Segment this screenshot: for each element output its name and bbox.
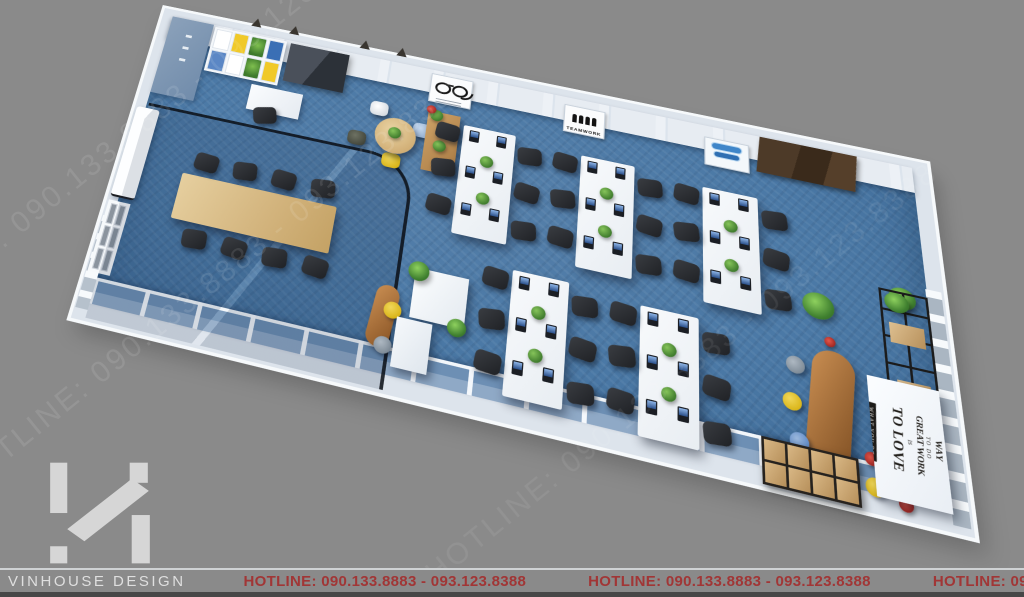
office-chair	[673, 182, 700, 207]
workstation-desk-4	[502, 270, 569, 410]
workstation-desk-5	[638, 305, 700, 450]
laptop	[739, 236, 750, 251]
laptop	[612, 241, 623, 256]
reception-sign-icon	[182, 46, 189, 50]
laptop	[545, 324, 557, 340]
interior: TEAMWORK	[87, 16, 953, 512]
vh-monogram-icon	[28, 452, 174, 566]
office-chair	[550, 189, 576, 210]
laptop	[709, 192, 720, 206]
laptop	[511, 360, 523, 377]
laptop	[515, 317, 527, 333]
desk-plant	[475, 191, 490, 206]
laptop	[469, 130, 480, 143]
reception-chair	[253, 107, 277, 124]
office-chair	[478, 307, 505, 330]
laptop	[488, 208, 499, 222]
laptop	[460, 202, 471, 216]
quote-text: THE ONLY WAY TO DO GREAT WORK IS TO LOVE…	[867, 395, 954, 492]
desk-plant	[662, 341, 677, 358]
laptop	[647, 354, 658, 370]
laptop	[678, 361, 689, 378]
hotline-text: HOTLINE: 090.133.8883 - 093.123.8388	[933, 573, 1024, 590]
wall-lamp-icon	[251, 18, 263, 28]
footer-bar: VINHOUSE DESIGN HOTLINE: 090.133.8883 - …	[0, 570, 1024, 592]
laptop	[492, 171, 503, 185]
gray-stool	[786, 354, 806, 376]
display-shelf	[204, 27, 287, 86]
pantry-cabinet	[390, 316, 433, 375]
laptop	[614, 203, 625, 217]
eames-chair-white	[369, 100, 389, 117]
office-chair	[764, 288, 793, 312]
laptop	[678, 406, 690, 423]
wall-lamp-icon	[289, 25, 301, 35]
desk-plant	[599, 186, 613, 201]
red-flower-pot	[824, 336, 836, 349]
conference-chair	[180, 228, 208, 251]
office-chair	[546, 224, 574, 250]
desk-plant	[527, 347, 543, 364]
desk-plant	[531, 305, 546, 322]
desk-plant	[479, 155, 493, 169]
office-chair	[701, 373, 731, 403]
poster-fine-print	[436, 98, 461, 104]
office-chair	[608, 344, 637, 368]
laptop	[548, 282, 560, 297]
office-chair	[609, 300, 638, 328]
laptop	[583, 235, 594, 250]
conference-chair	[232, 161, 258, 182]
office-chair	[511, 220, 536, 242]
laptop	[710, 269, 721, 284]
yellow-stool	[782, 390, 802, 413]
office-chair	[566, 381, 594, 407]
eames-chair-olive	[346, 129, 367, 147]
footer-dark-strip	[0, 592, 1024, 597]
hotline-text: HOTLINE: 090.133.8883 - 093.123.8388	[244, 573, 527, 590]
hotline-text: HOTLINE: 090.133.8883 - 093.123.8388	[588, 573, 871, 590]
conference-chair	[310, 178, 336, 199]
laptop	[738, 198, 749, 212]
workstation-desk-3	[702, 187, 761, 315]
terrace-bush	[802, 289, 836, 322]
wall-lamp-icon	[360, 39, 372, 49]
laptop	[585, 197, 596, 211]
desk-plant	[661, 385, 676, 403]
conference-chair	[261, 246, 289, 269]
office-chair	[517, 147, 542, 168]
laptop	[615, 166, 625, 180]
desk-plant	[724, 219, 738, 234]
workstation-desk-2	[575, 155, 635, 279]
laptop	[465, 165, 476, 179]
office-chair	[635, 213, 663, 239]
laptop	[519, 276, 531, 291]
wood-box	[889, 322, 926, 350]
reception-sign-icon	[179, 58, 186, 62]
desk-plant	[724, 258, 739, 274]
laptop	[496, 136, 507, 149]
laptop	[740, 276, 751, 291]
laptop	[678, 318, 689, 334]
office-chair	[637, 178, 663, 199]
laptop	[542, 367, 554, 384]
office-chair	[551, 151, 578, 175]
brand-name: VINHOUSE DESIGN	[8, 573, 186, 590]
office-chair	[571, 295, 598, 319]
dark-wood-wall-panel	[756, 137, 856, 192]
office-chair	[481, 264, 510, 291]
desk-plant	[598, 224, 612, 239]
vinhouse-logo	[28, 452, 174, 566]
office-chair	[701, 331, 730, 356]
office-chair	[424, 192, 453, 217]
wall-lamp-icon	[396, 47, 408, 57]
office-chair	[673, 221, 701, 243]
reception-feature-wall	[150, 16, 214, 101]
laptop	[646, 399, 658, 416]
office-chair	[762, 246, 790, 273]
laptop	[647, 311, 658, 327]
render-screenshot: { "colors": { "background": "#8a8a8a", "…	[0, 0, 1024, 597]
laptop	[710, 230, 721, 245]
office-chair	[760, 210, 788, 232]
laptop	[587, 161, 598, 175]
office-chair	[567, 335, 598, 364]
office-chair	[672, 258, 700, 285]
glasses-lens-icon	[435, 81, 452, 96]
office-chair	[512, 181, 540, 206]
office-chair	[635, 254, 662, 277]
workstation-desk-1	[451, 125, 516, 245]
office-chair	[431, 157, 455, 177]
office-building: TEAMWORK	[71, 8, 976, 538]
quote-line-5: TO LOVE	[887, 403, 907, 477]
reception-sign-icon	[185, 35, 192, 39]
